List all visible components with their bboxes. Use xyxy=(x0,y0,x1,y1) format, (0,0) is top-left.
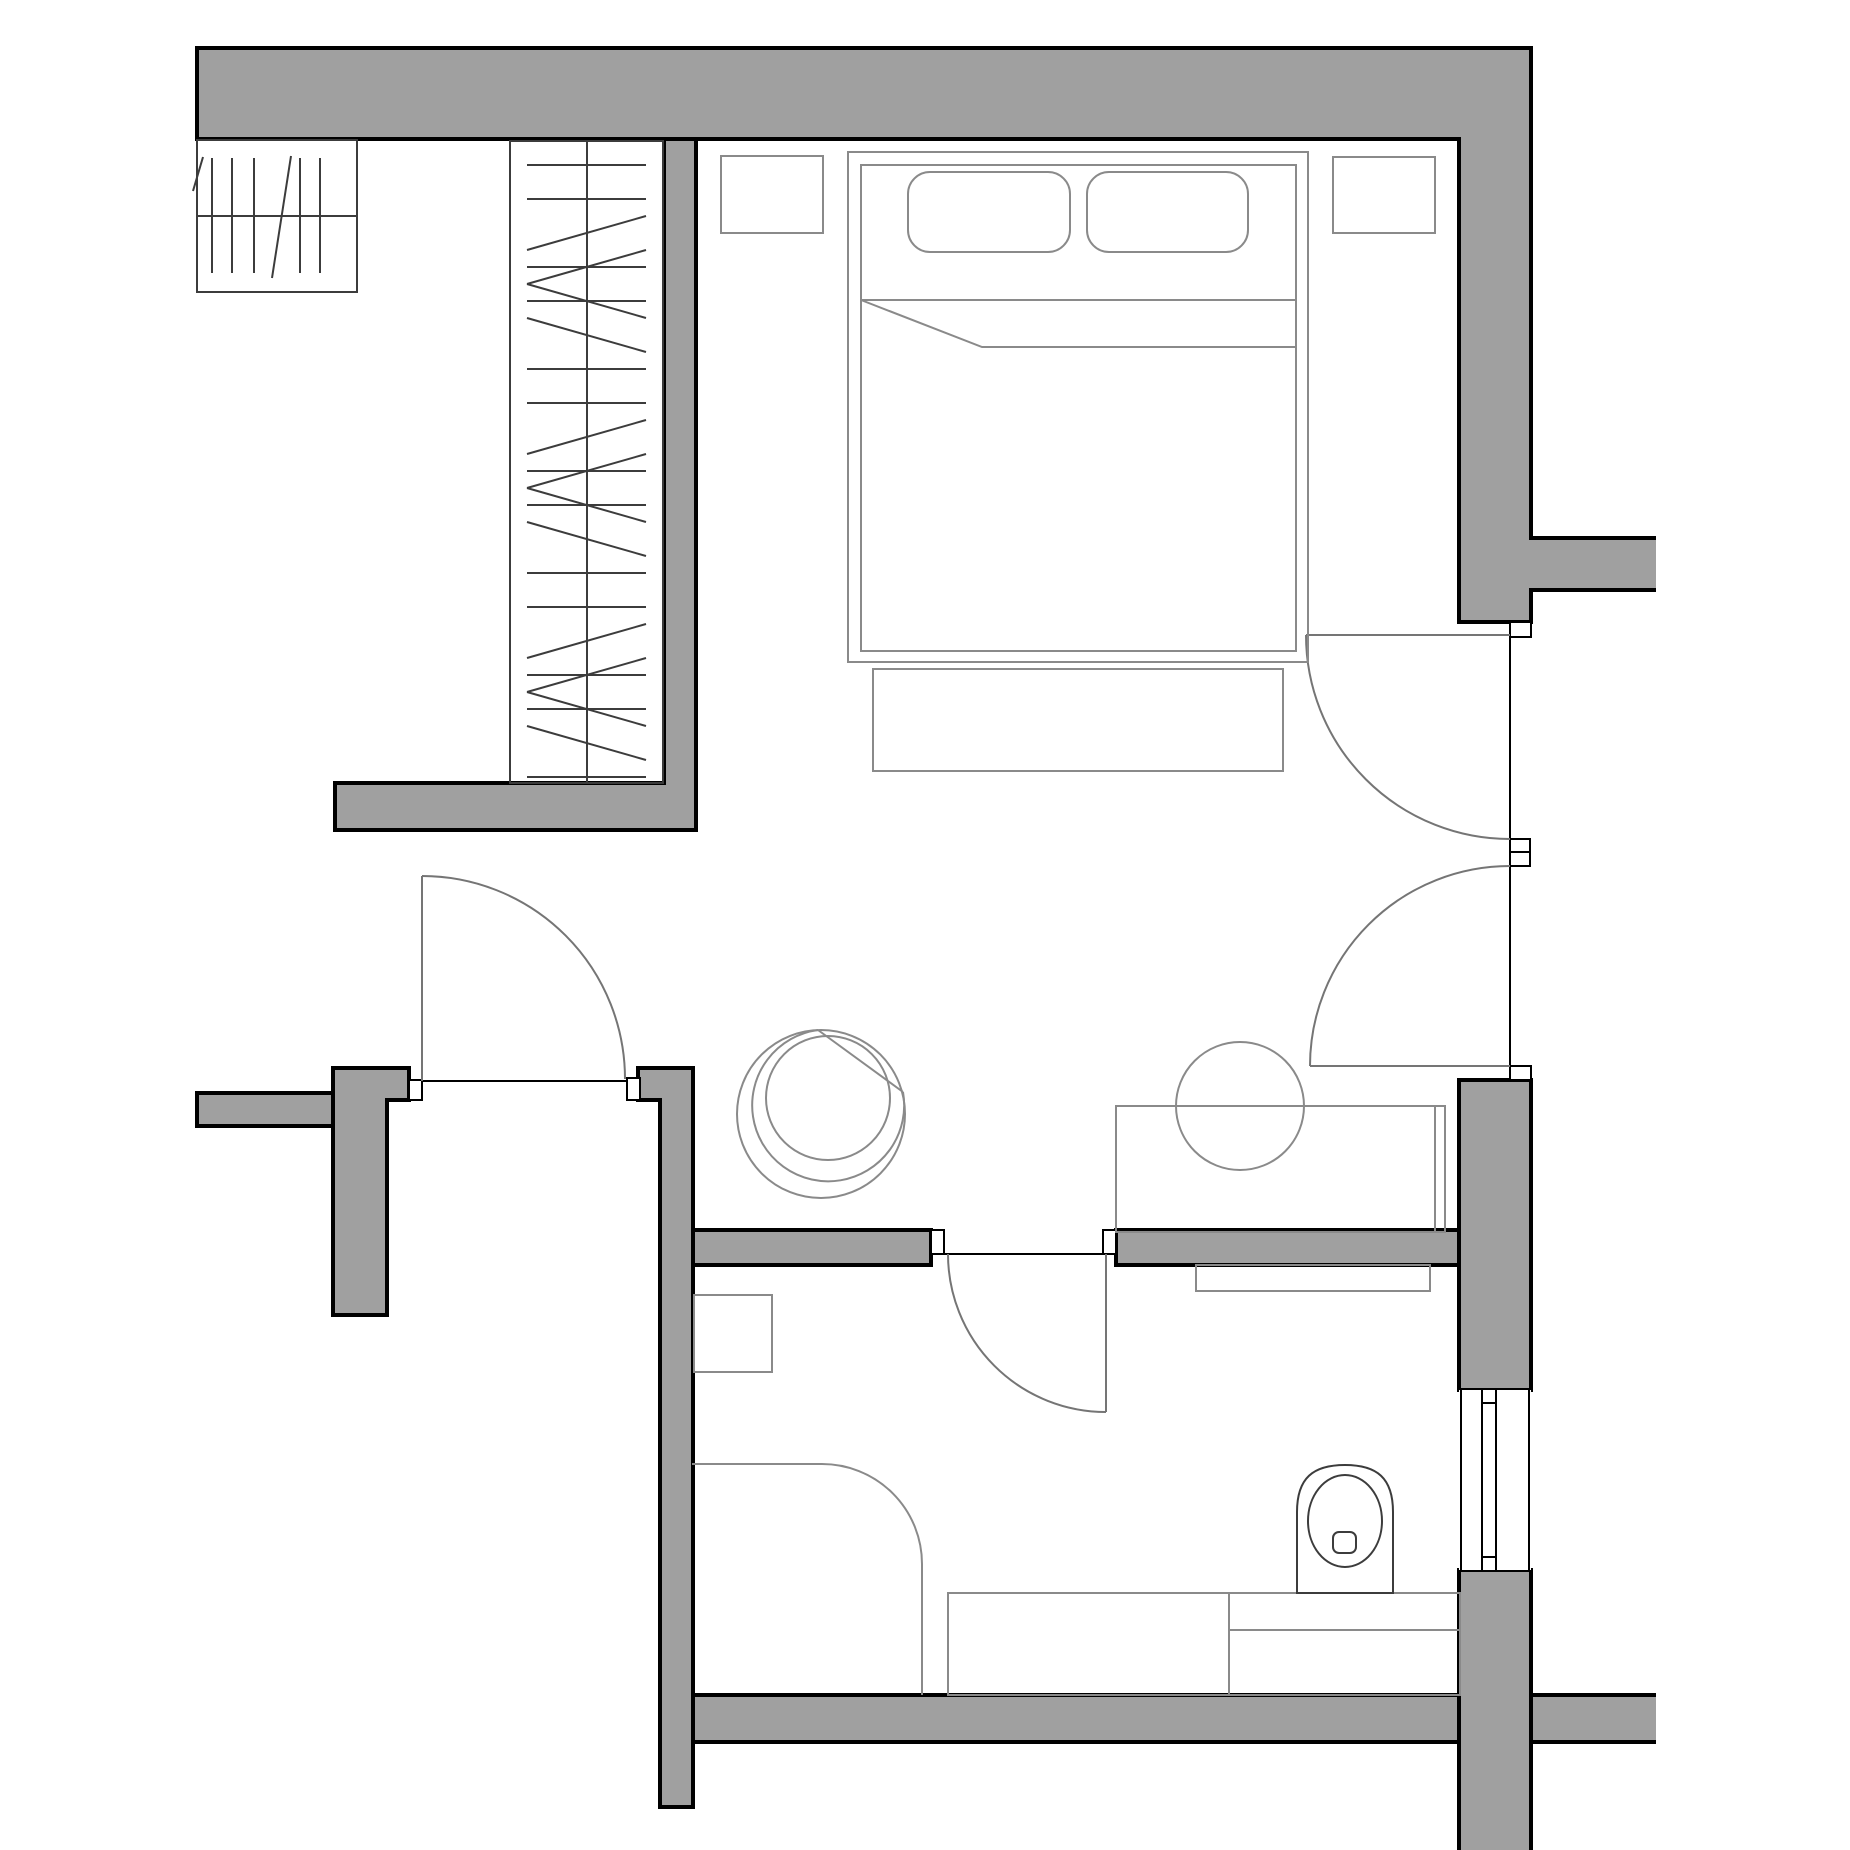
pillow-left xyxy=(908,172,1070,252)
vanity-counter xyxy=(1116,1106,1445,1232)
entry-door xyxy=(422,876,625,1081)
shower-enclosure xyxy=(692,1464,922,1695)
walls xyxy=(197,48,1656,1850)
tub-chair-seat xyxy=(766,1036,890,1160)
right-wall-bottom-column xyxy=(1459,1570,1531,1850)
opening-lines xyxy=(409,622,1531,1254)
staircase xyxy=(193,140,357,292)
toilet-body xyxy=(1297,1465,1393,1593)
room-divider-wall-left xyxy=(692,1230,931,1265)
top-exterior-wall xyxy=(197,48,1531,622)
bathroom-bench-left xyxy=(948,1593,1229,1695)
bedroom-furniture xyxy=(721,152,1445,1232)
right-wall-notch xyxy=(1510,622,1531,637)
bathroom-wall-shelf xyxy=(1196,1265,1430,1291)
tub-chair-backrest xyxy=(752,1030,904,1181)
bed-end-bench xyxy=(873,669,1283,771)
bathroom-jamb-left xyxy=(931,1230,944,1254)
pillow-right xyxy=(1087,172,1248,252)
bathroom-wall-cabinet xyxy=(694,1295,772,1372)
upper-door-swing-arc xyxy=(1306,635,1510,839)
bathroom-window xyxy=(1459,1390,1531,1570)
bathroom-left-wall xyxy=(638,1068,693,1807)
bathroom-bench-right xyxy=(1229,1593,1460,1695)
nightstand-left xyxy=(721,156,823,233)
entry-jamb-left xyxy=(409,1080,422,1100)
tub-chair-outer xyxy=(737,1030,905,1198)
toilet xyxy=(1297,1465,1393,1593)
corridor-double-door-lower xyxy=(1310,866,1510,1066)
entry-jamb-right xyxy=(627,1078,640,1100)
lower-door-swing-arc xyxy=(1310,866,1510,1066)
wardrobe xyxy=(510,141,663,783)
entry-t-column xyxy=(333,1068,409,1315)
bathroom-door-swing-arc xyxy=(948,1254,1106,1412)
double-bed xyxy=(848,152,1308,662)
sheet-fold xyxy=(861,300,1296,347)
floor-plan-canvas xyxy=(0,0,1850,1850)
lower-door-jamb xyxy=(1510,1066,1531,1080)
right-wall-protrusion xyxy=(1527,540,1656,588)
bathroom-door xyxy=(948,1254,1106,1412)
tub-chair xyxy=(737,1030,905,1198)
entry-door-swing-arc xyxy=(422,876,625,1079)
toilet-flush-button xyxy=(1333,1532,1356,1553)
vanity xyxy=(1116,1042,1445,1232)
bed-mattress xyxy=(861,165,1296,651)
bathroom-jamb-right xyxy=(1103,1230,1116,1254)
doors xyxy=(422,635,1510,1412)
entry-left-wall-stub xyxy=(197,1093,333,1126)
corridor-double-door-upper xyxy=(1306,635,1510,839)
right-wall-lower xyxy=(1459,1080,1531,1390)
nightstand-right xyxy=(1333,157,1435,233)
room-divider-wall-right xyxy=(1116,1230,1459,1265)
floor-plan-drawing xyxy=(0,0,1850,1850)
bed-frame xyxy=(848,152,1308,662)
wardrobe-side-wall xyxy=(335,139,696,830)
bathroom-fixtures xyxy=(692,1265,1460,1695)
